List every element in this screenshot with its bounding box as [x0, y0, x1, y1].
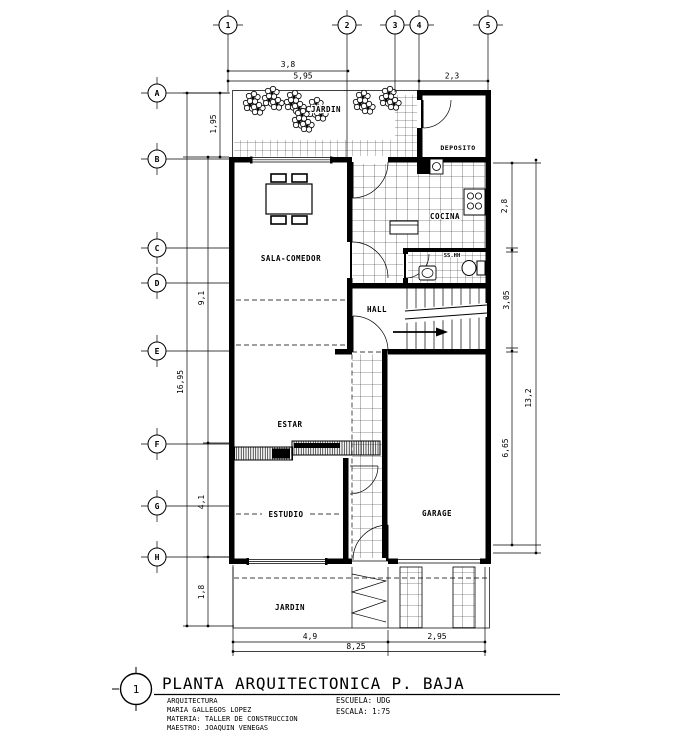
wall-deposito-left2	[417, 128, 423, 157]
dim-left-9-1: 9,1	[197, 291, 206, 306]
grid-columns: 1 2 3 4 5	[213, 10, 503, 157]
wall-cocina-hall	[347, 283, 491, 289]
deposito-door-leaf	[421, 100, 424, 128]
dining-table-icon	[266, 174, 312, 224]
wall-hall-south	[335, 349, 352, 355]
room-label-bano: SS.HH	[444, 253, 461, 259]
plant-icon	[243, 91, 265, 115]
room-label-jardin-top: JARDIN	[311, 105, 341, 114]
garden-walkway-tiles	[234, 140, 417, 157]
plant-icon	[262, 86, 284, 110]
wall-hall-south2	[388, 349, 491, 355]
wall-bath-left2	[403, 278, 408, 288]
dim-top-5-95: 5,95	[293, 72, 312, 81]
driveway-track-left	[400, 567, 422, 628]
credit-line-4: MAESTRO: JOAQUIN VENEGAS	[167, 724, 268, 732]
dim-bottom-2-95: 2,95	[427, 632, 446, 641]
dim-bottom-4-9: 4,9	[303, 632, 318, 641]
credit-line-2: MARIA GALLEGOS LOPEZ	[167, 706, 251, 714]
driveway-track-right	[453, 567, 475, 628]
walkway-tiles	[352, 355, 382, 559]
grid-label-D: D	[155, 279, 160, 288]
grid-label-4: 4	[417, 21, 422, 30]
hall-door-arc	[353, 316, 388, 351]
washbasin-icon	[419, 266, 436, 280]
front-door-leaf	[386, 525, 389, 561]
room-label-estar: ESTAR	[277, 420, 302, 429]
toilet-icon	[462, 261, 485, 276]
grid-bubble-1: 1	[213, 10, 243, 92]
detail-number: 1	[133, 683, 140, 696]
dim-top-2-3: 2,3	[445, 72, 460, 81]
stairs	[393, 288, 487, 349]
grid-rows: A B C D E F G H	[141, 77, 229, 573]
grid-label-3: 3	[393, 21, 398, 30]
sala-door-leaf	[350, 242, 352, 278]
grid-bubble-4: 4	[410, 10, 434, 92]
grid-label-2: 2	[345, 21, 350, 30]
stove-icon	[464, 189, 485, 215]
dim-right-2-8: 2,8	[500, 199, 509, 214]
dim-right-6-65: 6,65	[501, 438, 510, 457]
title-block: 1 PLANTA ARQUITECTONICA P. BAJA ARQUITEC…	[112, 667, 560, 732]
entry-door-leaf	[351, 162, 354, 198]
floor-plan-drawing: 1 2 3 4 5 A B C D	[0, 0, 676, 743]
scale-label: ESCALA: 1:75	[336, 707, 390, 716]
wall-bath-top	[403, 248, 491, 252]
room-label-hall: HALL	[367, 305, 387, 314]
grid-label-A: A	[155, 89, 160, 98]
wall-deposito-top	[417, 90, 491, 96]
grid-bubble-C: C	[141, 232, 229, 264]
entry-ramp	[352, 574, 386, 622]
room-label-sala-comedor: SALA-COMEDOR	[261, 254, 321, 263]
plant-icon	[353, 90, 375, 114]
dim-left-1-8: 1,8	[197, 585, 206, 600]
counter-icon	[390, 221, 418, 234]
grid-label-1: 1	[226, 21, 231, 30]
wall-right	[486, 90, 492, 564]
school-label: ESCUELA: UDG	[336, 696, 391, 705]
grid-bubble-B: B	[141, 143, 229, 175]
wall-deposito-left	[417, 90, 423, 100]
grid-label-C: C	[155, 244, 160, 253]
wall-bath-left	[403, 248, 408, 254]
wall-left	[229, 157, 235, 564]
deposito-door-arc	[424, 100, 452, 128]
dim-top-3-8: 3,8	[281, 60, 296, 69]
drawing-title: PLANTA ARQUITECTONICA P. BAJA	[162, 674, 465, 693]
dim-bottom-8-25: 8,25	[346, 642, 365, 651]
grid-bubble-5: 5	[473, 10, 503, 90]
grid-label-G: G	[155, 502, 160, 511]
room-label-garage: GARAGE	[422, 509, 452, 518]
grid-bubble-G: G	[141, 490, 229, 522]
grid-bubble-F: F	[141, 428, 229, 460]
dim-right-13-2: 13,2	[524, 388, 533, 407]
dim-left-4-1: 4,1	[197, 495, 206, 510]
dim-left-16-95: 16,95	[176, 370, 185, 394]
grid-label-E: E	[155, 347, 160, 356]
wall-estudio-right	[343, 458, 349, 564]
stair-arrow-icon	[436, 328, 448, 337]
room-label-jardin-bottom: JARDIN	[275, 603, 305, 612]
room-label-deposito: DEPOSITO	[440, 144, 475, 152]
room-label-cocina: COCINA	[430, 212, 460, 221]
dim-left-1-95: 1,95	[209, 114, 218, 133]
credit-line-3: MATERIA: TALLER DE CONSTRUCCION	[167, 715, 298, 723]
grid-bubble-D: D	[141, 267, 229, 299]
credit-line-1: ARQUITECTURA	[167, 697, 218, 705]
room-label-estudio: ESTUDIO	[268, 510, 303, 519]
grid-bubble-2: 2	[332, 10, 362, 157]
bath-door-leaf	[404, 254, 406, 278]
sink-icon	[417, 159, 443, 174]
grid-bubble-E: E	[141, 335, 229, 367]
dim-right-3-05: 3,05	[502, 290, 511, 309]
grid-label-F: F	[155, 440, 160, 449]
grid-label-5: 5	[486, 21, 491, 30]
floor-plan-sheet: 1 2 3 4 5 A B C D	[0, 0, 676, 743]
grid-bubble-3: 3	[380, 10, 410, 92]
grid-label-B: B	[155, 155, 160, 164]
grid-label-H: H	[155, 553, 160, 562]
hall-door-leaf	[351, 316, 354, 352]
